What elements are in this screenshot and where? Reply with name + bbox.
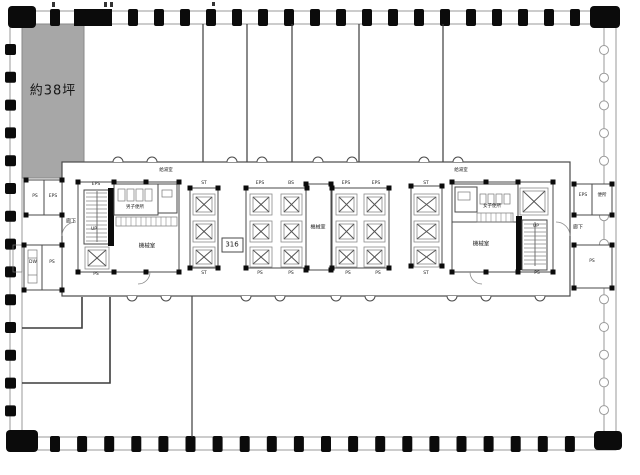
mullion-mark xyxy=(600,129,609,138)
label-corridor-right: 廊下 xyxy=(573,226,583,231)
fixture xyxy=(458,192,470,200)
column-dot xyxy=(24,213,29,218)
column-dot xyxy=(22,243,27,248)
column-dot xyxy=(551,270,556,275)
wall-column xyxy=(5,405,16,416)
fixture xyxy=(118,189,125,201)
label-mens-toilet: 男子便所 xyxy=(126,206,144,211)
label-st-1-top: ST xyxy=(201,182,207,187)
wall-column xyxy=(232,9,242,26)
wall-column xyxy=(5,239,16,250)
column-dot xyxy=(144,270,149,275)
wall-column xyxy=(511,436,521,452)
wall-column xyxy=(180,9,190,26)
column-dot xyxy=(516,270,521,275)
column-dot xyxy=(610,213,615,218)
fixture xyxy=(145,189,152,201)
wall-column xyxy=(414,9,424,26)
column-dot xyxy=(112,270,117,275)
wall-column xyxy=(128,9,138,26)
partition-lines xyxy=(22,297,110,383)
wall-column xyxy=(440,9,450,26)
wall-column xyxy=(544,9,554,26)
column-dot xyxy=(60,213,65,218)
wall-column xyxy=(5,127,16,138)
column-dot xyxy=(60,288,65,293)
mullion-mark xyxy=(600,295,609,304)
column-dot xyxy=(76,270,81,275)
column-dot xyxy=(60,178,65,183)
label-eps-core1: EPS xyxy=(92,183,100,188)
wall-column xyxy=(284,9,294,26)
wall-column xyxy=(388,9,398,26)
wall-column xyxy=(466,9,476,26)
label-womens-toilet: 女子便所 xyxy=(483,205,501,210)
label-eps-bank3-b: EPS xyxy=(372,182,380,187)
wall-column xyxy=(484,436,494,452)
label-ps-bank3-b: PS xyxy=(375,272,381,277)
area-label: 約38坪 xyxy=(30,85,77,98)
column-dot xyxy=(76,180,81,185)
wall-column xyxy=(104,436,114,452)
wall-column xyxy=(336,9,346,26)
column-dot xyxy=(516,180,521,185)
wall-column xyxy=(457,436,467,452)
kitchenette-room xyxy=(158,184,177,213)
fixture xyxy=(488,194,494,204)
label-machine-room-2: 機械室 xyxy=(473,242,490,248)
wall-column xyxy=(321,436,331,452)
wall-column xyxy=(50,436,60,452)
column-dot xyxy=(330,266,335,271)
wall-column xyxy=(50,9,60,26)
column-dot xyxy=(610,286,615,291)
column-dot xyxy=(188,266,193,271)
label-ps-left-bottom: PS xyxy=(49,261,55,266)
label-eps-left-top: EPS xyxy=(49,195,57,200)
mullion-mark xyxy=(600,46,609,55)
column-dot xyxy=(216,266,221,271)
wall-column xyxy=(402,436,412,452)
fixture xyxy=(480,194,486,204)
label-kitchenette-2: 給湯室 xyxy=(454,169,468,174)
label-toilet-right: 便所 xyxy=(598,194,607,199)
wall-column xyxy=(492,9,502,26)
mullion-mark xyxy=(600,156,609,165)
wall-column xyxy=(362,9,372,26)
column-dot xyxy=(572,213,577,218)
label-kitchenette-1: 給湯室 xyxy=(159,169,173,174)
wall-column xyxy=(570,9,580,26)
wall-column xyxy=(294,436,304,452)
fixture xyxy=(136,189,143,201)
label-ps-bank2-b: PS xyxy=(288,272,294,277)
label-ps-right: PS xyxy=(589,260,595,265)
column-dot xyxy=(188,186,193,191)
column-dot xyxy=(177,180,182,185)
column-dot xyxy=(572,243,577,248)
wall-column xyxy=(5,44,16,55)
wall-column xyxy=(518,9,528,26)
column-dot xyxy=(177,270,182,275)
wall-column xyxy=(158,436,168,452)
column-dot xyxy=(551,180,556,185)
label-eps-right: EPS xyxy=(579,194,587,199)
column-dot xyxy=(330,186,335,191)
label-st-1-bottom: ST xyxy=(201,272,207,277)
column-dot xyxy=(22,288,27,293)
column-dot xyxy=(484,180,489,185)
label-machine-room-1: 機械室 xyxy=(139,244,156,250)
column-dot xyxy=(440,264,445,269)
label-dw: DW xyxy=(29,261,37,266)
column-dot xyxy=(440,184,445,189)
label-eps-bank2: EPS xyxy=(256,182,264,187)
column-dot xyxy=(610,182,615,187)
label-ps-left-top: PS xyxy=(32,195,38,200)
label-ps-bank2-a: PS xyxy=(257,272,263,277)
highlight-area xyxy=(22,24,84,178)
wall-column xyxy=(348,436,358,452)
column-dot xyxy=(572,286,577,291)
right-service-rooms xyxy=(574,184,612,288)
label-st-2-bottom: ST xyxy=(423,272,429,277)
wall-column xyxy=(102,9,112,26)
column-dot xyxy=(112,180,117,185)
column-dot xyxy=(387,186,392,191)
label-ps-core2: PS xyxy=(534,272,540,277)
column-dot xyxy=(24,178,29,183)
label-st-2-top: ST xyxy=(423,182,429,187)
wall-column xyxy=(5,350,16,361)
column-dot xyxy=(409,184,414,189)
mullion-mark xyxy=(600,350,609,359)
label-corridor-left: 廊下 xyxy=(66,220,76,225)
label-ps-core1: PS xyxy=(93,273,99,278)
column-dot xyxy=(572,182,577,187)
stair-wall xyxy=(108,188,114,246)
wall-column xyxy=(5,322,16,333)
floor-plan: 約38坪 PS EPS 廊下 DW PS EPS UP PS 男子便所 給湯室 … xyxy=(0,0,640,475)
room-number: 316 xyxy=(225,242,238,249)
label-up-2: UP xyxy=(533,225,539,230)
wall-column xyxy=(186,436,196,452)
wall-column xyxy=(5,211,16,222)
wall-column xyxy=(5,183,16,194)
stair-wall-2 xyxy=(516,216,522,270)
label-up-1: UP xyxy=(91,228,97,233)
wall-column xyxy=(213,436,223,452)
fixture xyxy=(504,194,510,204)
column-dot xyxy=(144,180,149,185)
mullion-mark xyxy=(600,378,609,387)
column-dot xyxy=(409,264,414,269)
wall-column xyxy=(310,9,320,26)
column-dot xyxy=(216,186,221,191)
wall-column xyxy=(258,9,268,26)
wall-column xyxy=(5,100,16,111)
column-dot xyxy=(244,266,249,271)
label-eps-bank3-a: EPS xyxy=(342,182,350,187)
wall-column xyxy=(131,436,141,452)
wall-column xyxy=(429,436,439,452)
floor-plan-drawing xyxy=(0,0,640,475)
wall-column xyxy=(206,9,216,26)
wall-column xyxy=(76,9,86,26)
column-dot xyxy=(610,243,615,248)
label-ps-bank3-a: PS xyxy=(345,272,351,277)
wall-column xyxy=(5,72,16,83)
wall-column xyxy=(240,436,250,452)
fixture xyxy=(496,194,502,204)
mullion-mark xyxy=(600,323,609,332)
wall-column xyxy=(5,294,16,305)
fixture xyxy=(127,189,134,201)
fixture xyxy=(162,190,172,197)
column-dot xyxy=(450,270,455,275)
wall-column xyxy=(154,9,164,26)
wall-column xyxy=(375,436,385,452)
mullion-mark xyxy=(600,406,609,415)
tick-marks xyxy=(52,2,215,7)
wall-column xyxy=(565,436,575,452)
mullion-mark xyxy=(600,73,609,82)
mullion-mark xyxy=(600,101,609,110)
wall-column xyxy=(77,436,87,452)
column-dot xyxy=(484,270,489,275)
column-dot xyxy=(304,268,309,273)
column-dot xyxy=(60,243,65,248)
wall-column xyxy=(267,436,277,452)
column-dot xyxy=(387,266,392,271)
wall-column xyxy=(5,378,16,389)
label-bs-bank2: BS xyxy=(288,182,294,187)
column-dot xyxy=(244,186,249,191)
wall-column xyxy=(538,436,548,452)
column-dot xyxy=(450,180,455,185)
label-machine-room-mid: 機械室 xyxy=(310,226,325,231)
wall-column xyxy=(5,155,16,166)
column-dot xyxy=(304,182,309,187)
